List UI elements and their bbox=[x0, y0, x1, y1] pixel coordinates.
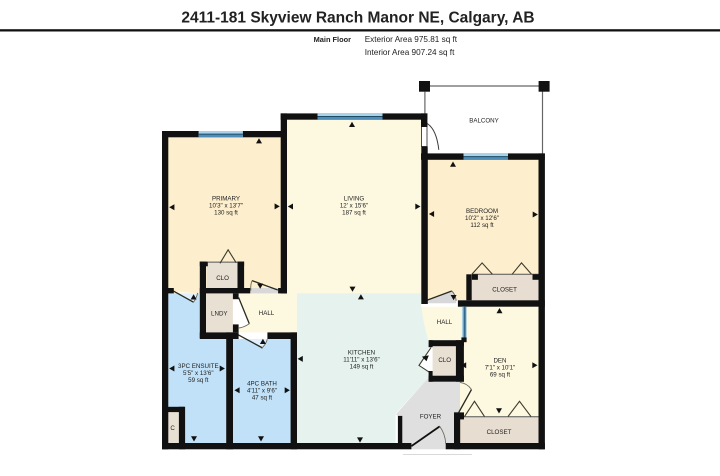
svg-text:CLO: CLO bbox=[216, 275, 229, 282]
svg-text:10'3" x 13'7": 10'3" x 13'7" bbox=[209, 203, 243, 210]
svg-text:CLO: CLO bbox=[438, 357, 451, 364]
svg-text:149 sq ft: 149 sq ft bbox=[350, 364, 374, 371]
svg-text:C: C bbox=[170, 425, 175, 432]
svg-text:Main Floor: Main Floor bbox=[314, 35, 351, 44]
svg-text:PRIMARY: PRIMARY bbox=[212, 196, 240, 203]
svg-text:3PC ENSUITE: 3PC ENSUITE bbox=[178, 363, 219, 370]
svg-text:10'2" x 12'6": 10'2" x 12'6" bbox=[465, 215, 499, 222]
svg-text:2411-181 Skyview Ranch Manor N: 2411-181 Skyview Ranch Manor NE, Calgary… bbox=[181, 9, 534, 26]
svg-text:12' x 15'6": 12' x 15'6" bbox=[340, 203, 368, 210]
svg-text:69 sq ft: 69 sq ft bbox=[490, 372, 511, 379]
svg-text:4'11" x 9'6": 4'11" x 9'6" bbox=[247, 387, 277, 394]
svg-text:5'5" x 13'6": 5'5" x 13'6" bbox=[183, 370, 214, 377]
svg-text:59 sq ft: 59 sq ft bbox=[188, 377, 209, 384]
svg-text:47 sq ft: 47 sq ft bbox=[252, 395, 273, 402]
svg-text:112 sq ft: 112 sq ft bbox=[470, 222, 494, 229]
svg-text:CLOSET: CLOSET bbox=[492, 287, 517, 294]
svg-text:11'11" x 13'6": 11'11" x 13'6" bbox=[343, 356, 379, 363]
svg-text:HALL: HALL bbox=[259, 310, 275, 317]
svg-text:DEN: DEN bbox=[493, 357, 506, 364]
svg-text:LIVING: LIVING bbox=[344, 196, 364, 203]
svg-text:KITCHEN: KITCHEN bbox=[348, 349, 375, 356]
svg-text:CLOSET: CLOSET bbox=[487, 429, 512, 436]
svg-text:187 sq ft: 187 sq ft bbox=[342, 210, 366, 217]
svg-text:BALCONY: BALCONY bbox=[469, 118, 499, 125]
svg-text:4PC BATH: 4PC BATH bbox=[247, 380, 277, 387]
svg-text:LNDY: LNDY bbox=[211, 310, 228, 317]
svg-text:BEDROOM: BEDROOM bbox=[466, 208, 498, 215]
svg-text:FOYER: FOYER bbox=[420, 414, 442, 421]
svg-text:Exterior Area 975.81 sq ft: Exterior Area 975.81 sq ft bbox=[365, 35, 458, 44]
svg-text:130 sq ft: 130 sq ft bbox=[214, 210, 238, 217]
svg-text:7'1" x 10'1": 7'1" x 10'1" bbox=[485, 364, 516, 371]
svg-text:Interior Area 907.24 sq ft: Interior Area 907.24 sq ft bbox=[365, 48, 455, 57]
svg-text:HALL: HALL bbox=[437, 319, 453, 326]
